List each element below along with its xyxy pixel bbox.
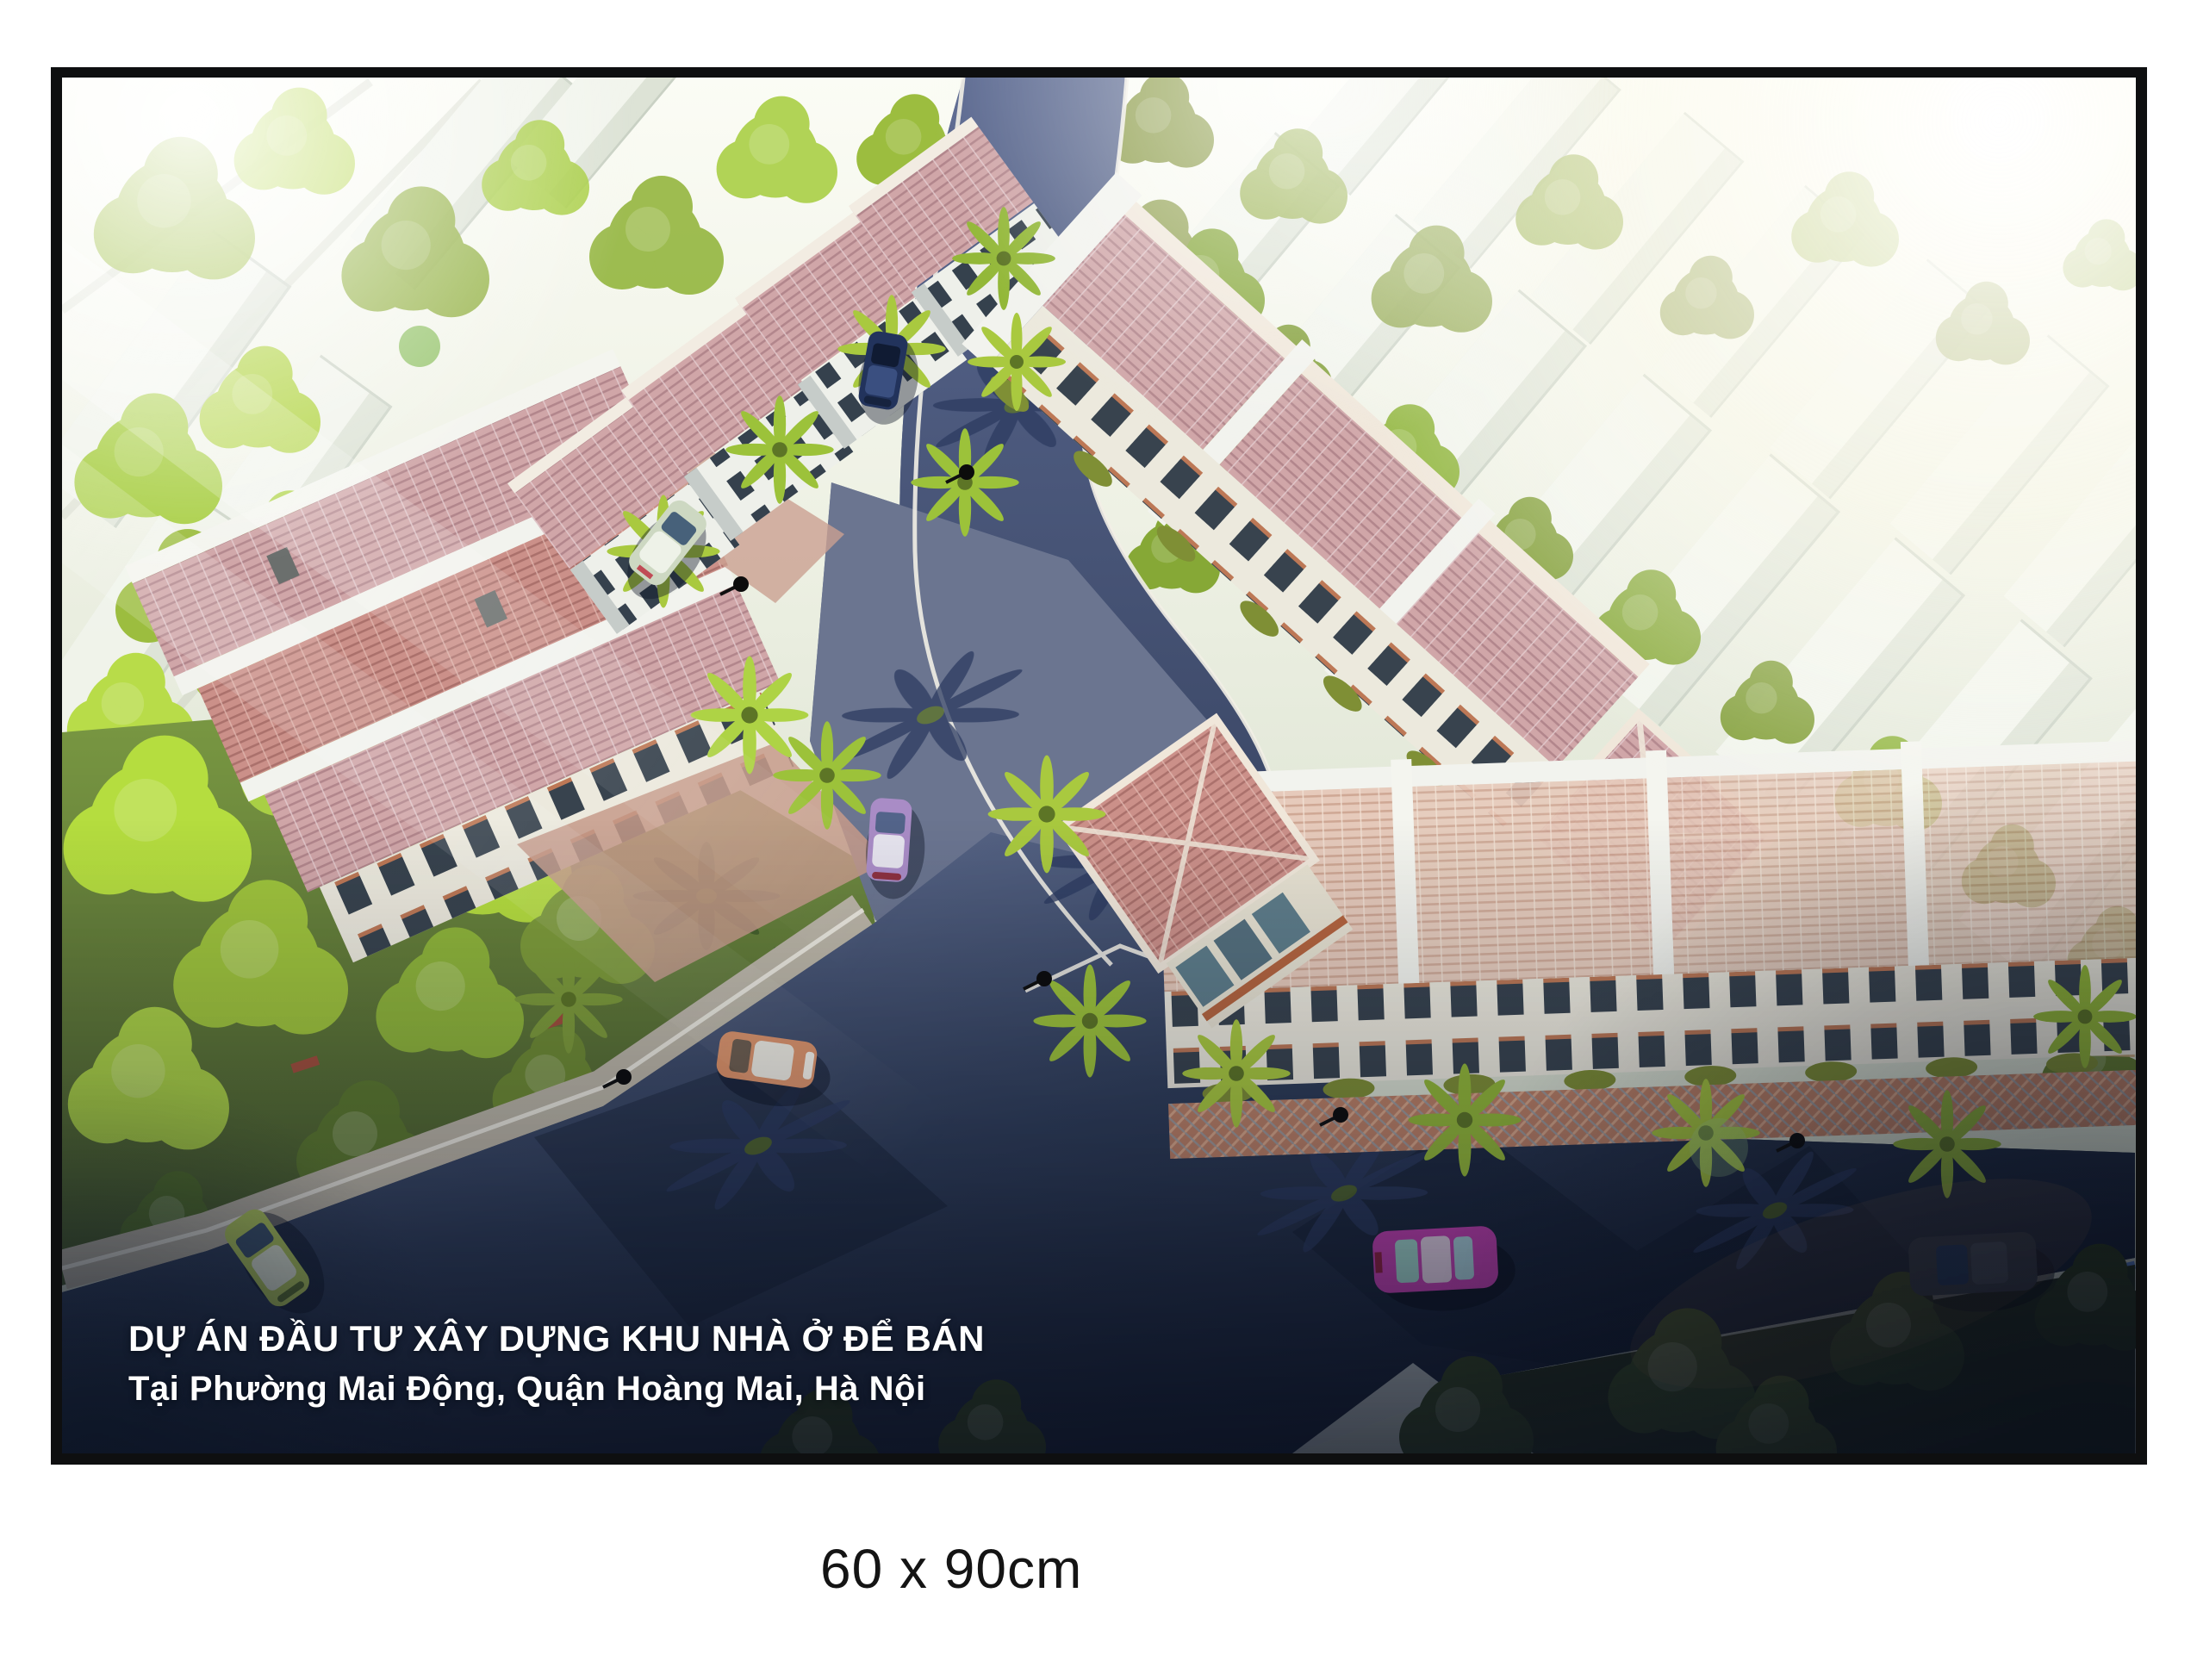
project-title: DỰ ÁN ĐẦU TƯ XÂY DỰNG KHU NHÀ Ở ĐỂ BÁN [128, 1318, 985, 1360]
poster-frame: DỰ ÁN ĐẦU TƯ XÂY DỰNG KHU NHÀ Ở ĐỂ BÁN T… [51, 67, 2147, 1465]
aerial-render [62, 78, 2136, 1453]
print-size-label: 60 x 90cm [820, 1537, 1082, 1601]
project-title-block: DỰ ÁN ĐẦU TƯ XÂY DỰNG KHU NHÀ Ở ĐỂ BÁN T… [128, 1318, 985, 1409]
poster-page: DỰ ÁN ĐẦU TƯ XÂY DỰNG KHU NHÀ Ở ĐỂ BÁN T… [0, 0, 2197, 1680]
aerial-render-svg [62, 78, 2136, 1453]
project-location: Tại Phường Mai Động, Quận Hoàng Mai, Hà … [128, 1370, 985, 1409]
